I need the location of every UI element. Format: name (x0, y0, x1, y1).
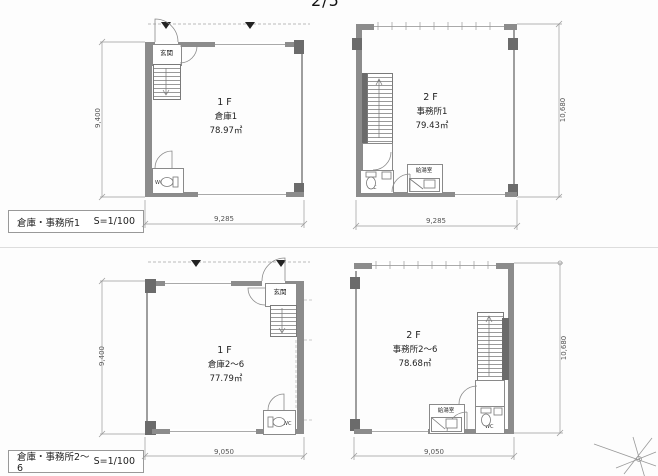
sheet-divider (0, 247, 658, 248)
wall-segment (146, 293, 148, 422)
window (372, 429, 428, 434)
caption-box: 倉庫・事務所2～6 S=1/100 (8, 450, 144, 473)
column (350, 277, 360, 289)
unit-name: 倉庫1 (166, 110, 286, 122)
toilet-icon (161, 172, 502, 427)
unit-area: 78.97㎡ (166, 124, 286, 136)
wc-label: WC (368, 185, 376, 191)
window (165, 281, 231, 286)
floor-plan-sheet: 2/5 玄関 WC 1F 倉庫1 78.97㎡ 9,400 9,285 倉庫・事… (0, 0, 658, 476)
window (374, 24, 504, 30)
dim-vertical: 9,400 (98, 336, 106, 376)
unit-area: 77.79㎡ (166, 372, 286, 384)
stair-hall (362, 143, 393, 172)
window (455, 192, 505, 197)
stairs (477, 312, 504, 382)
dim-horizontal: 9,285 (194, 215, 254, 223)
window (170, 429, 256, 434)
stair-wall (502, 318, 509, 380)
wall-segment (301, 54, 303, 184)
dim-horizontal: 9,050 (194, 448, 254, 456)
floor-label: 2F (355, 330, 475, 341)
caption-scale: S=1/100 (94, 456, 135, 467)
window (198, 192, 286, 197)
floor-label: 2F (372, 92, 492, 103)
dim-vertical: 9,400 (94, 98, 102, 138)
stair-hall (475, 380, 505, 408)
dim-horizontal: 9,285 (406, 217, 466, 225)
dim-horizontal: 9,050 (404, 448, 464, 456)
wall-segment (297, 281, 304, 434)
window-tick (376, 22, 490, 269)
compass-star-icon (594, 437, 656, 476)
plan-title: 2F 事務所2～6 78.68㎡ (355, 330, 475, 369)
dim-vertical: 10,680 (559, 90, 567, 130)
wall-segment (513, 30, 515, 190)
wc-label: WC (155, 180, 163, 186)
unit-name: 事務所2～6 (355, 343, 475, 355)
column (294, 40, 304, 54)
dim-vertical: 10,680 (560, 328, 568, 368)
kitchen-counter (409, 178, 440, 192)
caption-scale: S=1/100 (94, 216, 135, 227)
column (352, 38, 362, 50)
column (508, 38, 518, 50)
column (145, 279, 156, 293)
floor-label: 1F (166, 97, 286, 108)
wall-segment (145, 42, 152, 197)
plan-title: 2F 事務所1 79.43㎡ (372, 92, 492, 131)
caption-box: 倉庫・事務所1 S=1/100 (8, 210, 144, 233)
plan-title: 1F 倉庫2～6 77.79㎡ (166, 345, 286, 384)
wc-label: WC (485, 424, 493, 430)
kitchen-label: 給湯室 (408, 168, 440, 174)
stairs (153, 64, 181, 100)
window (215, 42, 285, 47)
plan-title: 1F 倉庫1 78.97㎡ (166, 97, 286, 136)
window (372, 263, 496, 269)
entrance-label: 玄関 (153, 50, 180, 57)
kitchen-label: 給湯室 (430, 408, 462, 414)
caption-title: 倉庫・事務所2～6 (17, 449, 94, 474)
floor-label: 1F (166, 345, 286, 356)
unit-area: 79.43㎡ (372, 119, 492, 131)
wc-label: WC (283, 421, 291, 427)
wc-room (360, 170, 394, 194)
entrance-label: 玄関 (266, 289, 294, 296)
unit-name: 倉庫2～6 (166, 358, 286, 370)
stairs (270, 305, 297, 337)
unit-name: 事務所1 (372, 105, 492, 117)
drawing-linework (0, 0, 658, 476)
caption-title: 倉庫・事務所1 (17, 215, 80, 229)
kitchen-counter (431, 417, 462, 432)
unit-area: 78.68㎡ (355, 357, 475, 369)
page-number: 2/5 (311, 0, 340, 10)
